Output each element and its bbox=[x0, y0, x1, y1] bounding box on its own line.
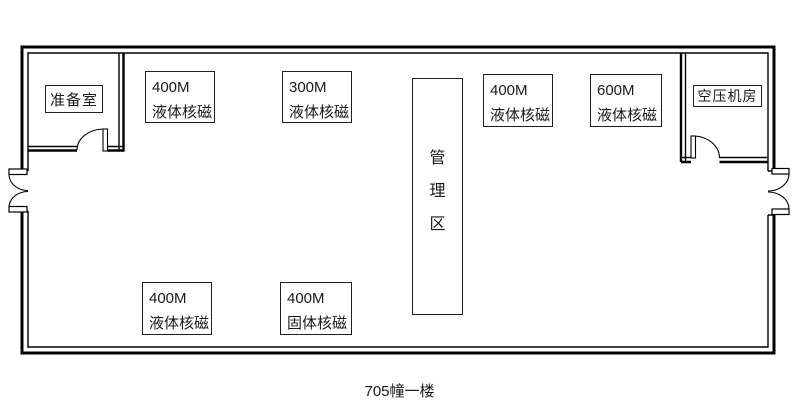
equipment-type: 液体核磁 bbox=[490, 103, 552, 128]
equipment-power: 400M bbox=[490, 78, 552, 103]
prep-room-label: 准备室 bbox=[45, 85, 103, 113]
prep-room-door bbox=[77, 129, 108, 151]
compressor-room-label: 空压机房 bbox=[693, 85, 762, 107]
prep-room-door-arc bbox=[77, 129, 103, 150]
equipment-type: 液体核磁 bbox=[152, 100, 214, 125]
equipment-box-600m-liquid: 600M 液体核磁 bbox=[590, 74, 662, 127]
equipment-power: 600M bbox=[597, 78, 661, 103]
left-entrance-door bbox=[9, 169, 28, 212]
equipment-box-400m-liquid-3: 400M 液体核磁 bbox=[142, 282, 212, 335]
admin-area-box: 管 理 区 bbox=[412, 78, 463, 315]
left-door-top-arc bbox=[9, 175, 28, 191]
left-door-bottom-arc bbox=[9, 191, 28, 206]
prep-room-door-leaf bbox=[103, 129, 108, 151]
admin-area-char-1: 管 bbox=[429, 144, 445, 168]
compressor-room-label-text: 空压机房 bbox=[698, 86, 758, 106]
equipment-type: 液体核磁 bbox=[289, 100, 351, 125]
equipment-type: 液体核磁 bbox=[597, 103, 661, 128]
equipment-box-400m-solid: 400M 固体核磁 bbox=[280, 282, 352, 335]
left-door-top-leaf bbox=[9, 169, 27, 175]
floor-plan-drawing bbox=[0, 0, 799, 419]
equipment-type: 固体核磁 bbox=[287, 311, 351, 336]
right-entrance-door bbox=[768, 169, 789, 215]
right-door-top-leaf bbox=[772, 169, 789, 175]
right-door-top-arc bbox=[768, 174, 789, 191]
floor-plan: 准备室 空压机房 管 理 区 400M 液体核磁 300M 液体核磁 400M … bbox=[0, 0, 799, 419]
compressor-room-door-arc bbox=[693, 136, 720, 158]
equipment-power: 400M bbox=[287, 286, 351, 311]
equipment-type: 液体核磁 bbox=[149, 311, 211, 336]
equipment-box-300m-liquid: 300M 液体核磁 bbox=[282, 71, 352, 123]
compressor-room-door bbox=[691, 136, 720, 158]
prep-room-label-text: 准备室 bbox=[50, 89, 98, 110]
equipment-power: 400M bbox=[149, 286, 211, 311]
equipment-power: 300M bbox=[289, 75, 351, 100]
equipment-power: 400M bbox=[152, 75, 214, 100]
right-door-bottom-arc bbox=[768, 192, 789, 209]
page-caption: 705幢一楼 bbox=[0, 380, 799, 401]
equipment-box-400m-liquid-1: 400M 液体核磁 bbox=[145, 71, 215, 123]
left-door-bottom-leaf bbox=[9, 207, 27, 213]
equipment-box-400m-liquid-2: 400M 液体核磁 bbox=[483, 74, 553, 127]
compressor-room-door-leaf bbox=[691, 136, 696, 158]
admin-area-char-3: 区 bbox=[429, 210, 445, 234]
right-door-bottom-leaf bbox=[772, 209, 789, 215]
admin-area-char-2: 理 bbox=[429, 177, 445, 201]
